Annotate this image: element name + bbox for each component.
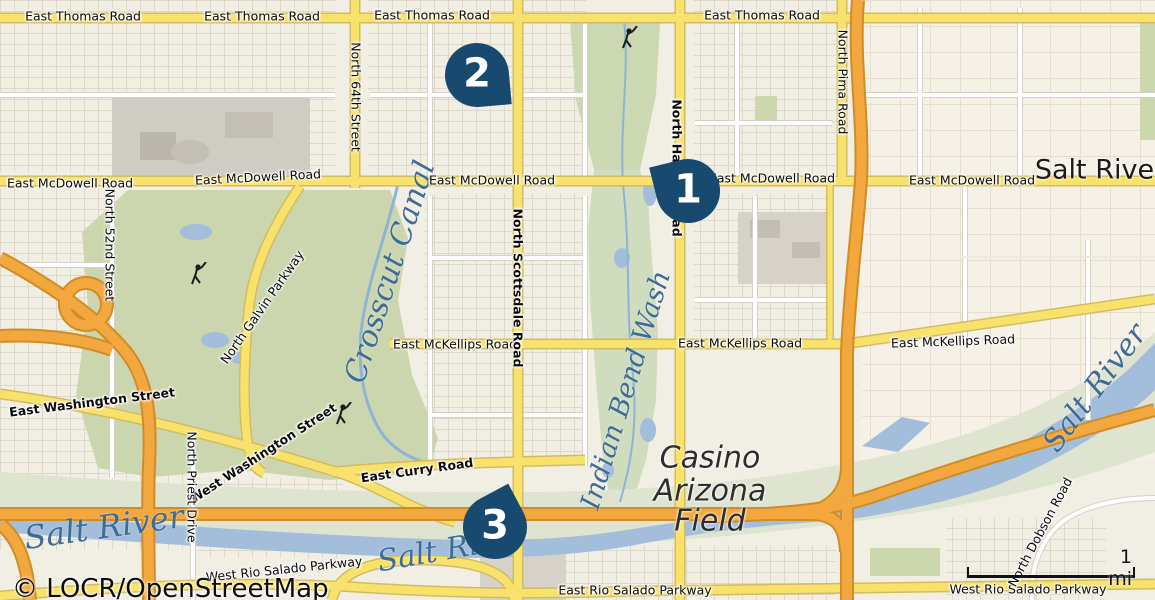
place-label-casino-line3: Field [674,504,745,539]
road-label-e-rio-salado: East Rio Salado Parkway [558,583,711,598]
road-label-w-rio-salado-2: West Rio Salado Parkway [949,582,1106,597]
road-label-thomas-2: East Thomas Road [204,9,320,24]
map-attribution: © LOCR/OpenStreetMap [12,574,329,600]
road-label-mcdowell-5: East McDowell Road [909,173,1035,188]
marker-number-3[interactable]: 3 [481,505,509,545]
small-park [870,548,940,576]
road-label-pima-road: North Pima Road [836,30,851,135]
map-canvas[interactable]: East Thomas Road East Thomas Road East T… [0,0,1155,600]
road-label-52nd-street: North 52nd Street [103,189,118,302]
marker-number-1[interactable]: 1 [674,169,702,209]
place-label-casino-line1: Casino [660,441,761,476]
road-label-scottsdale-road: North Scottsdale Road [511,209,526,368]
golf-course-icon [186,262,210,288]
place-label-salt-river-community: Salt River [1035,155,1155,186]
road-label-thomas-1: East Thomas Road [25,9,141,24]
scale-bar-label: 1 mi [1092,546,1132,590]
road-label-mckellips-2: East McKellips Road [678,336,802,351]
marker-number-2[interactable]: 2 [463,53,491,93]
road-label-priest-drive: North Priest Drive [185,431,200,542]
road-label-mcdowell-3: East McDowell Road [429,173,555,188]
road-label-mckellips-1: East McKellips Road [393,337,517,352]
golf-course-icon [617,26,641,52]
road-label-64th-street: North 64th Street [349,42,364,152]
road-label-thomas-4: East Thomas Road [704,8,820,23]
